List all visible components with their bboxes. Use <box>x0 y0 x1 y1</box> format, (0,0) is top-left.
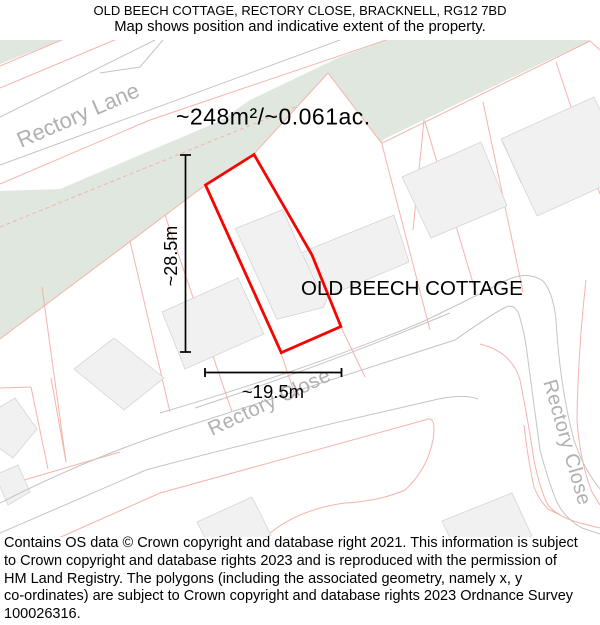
svg-text:~248m²/~0.061ac.: ~248m²/~0.061ac. <box>176 104 371 130</box>
svg-text:~28.5m: ~28.5m <box>161 226 181 287</box>
svg-text:OLD BEECH COTTAGE: OLD BEECH COTTAGE <box>301 277 523 300</box>
svg-text:~19.5m: ~19.5m <box>242 381 304 402</box>
